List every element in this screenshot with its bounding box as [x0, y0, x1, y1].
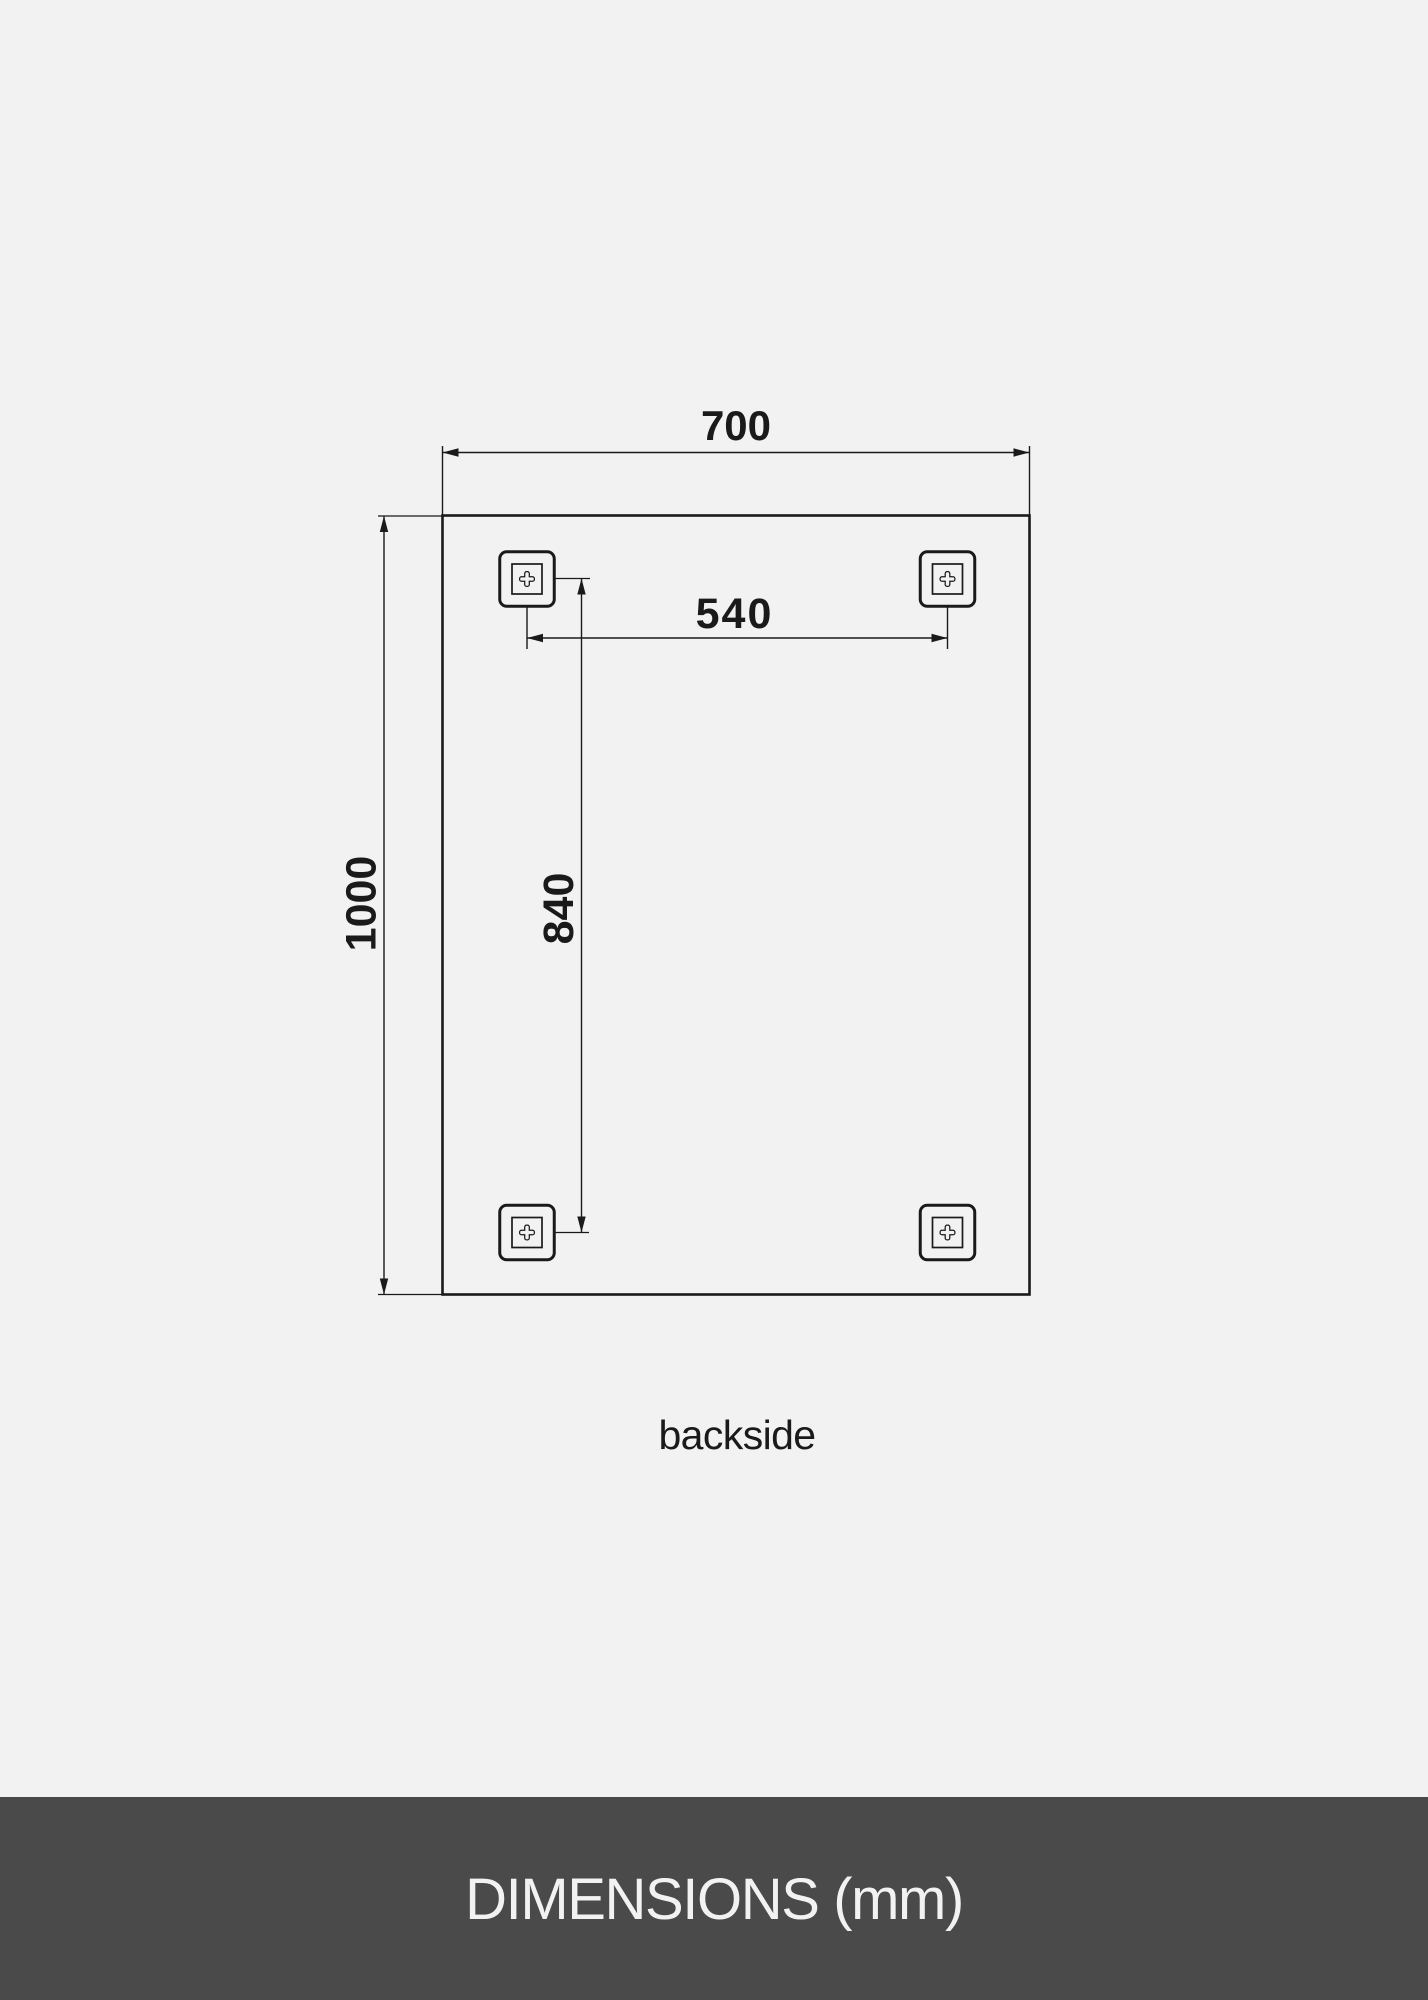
svg-text:840: 840 — [535, 873, 583, 945]
svg-text:backside: backside — [658, 1412, 815, 1458]
svg-text:540: 540 — [696, 590, 774, 638]
svg-text:1000: 1000 — [338, 856, 386, 952]
svg-text:700: 700 — [701, 402, 771, 449]
svg-text:DIMENSIONS (mm): DIMENSIONS (mm) — [465, 1867, 963, 1932]
